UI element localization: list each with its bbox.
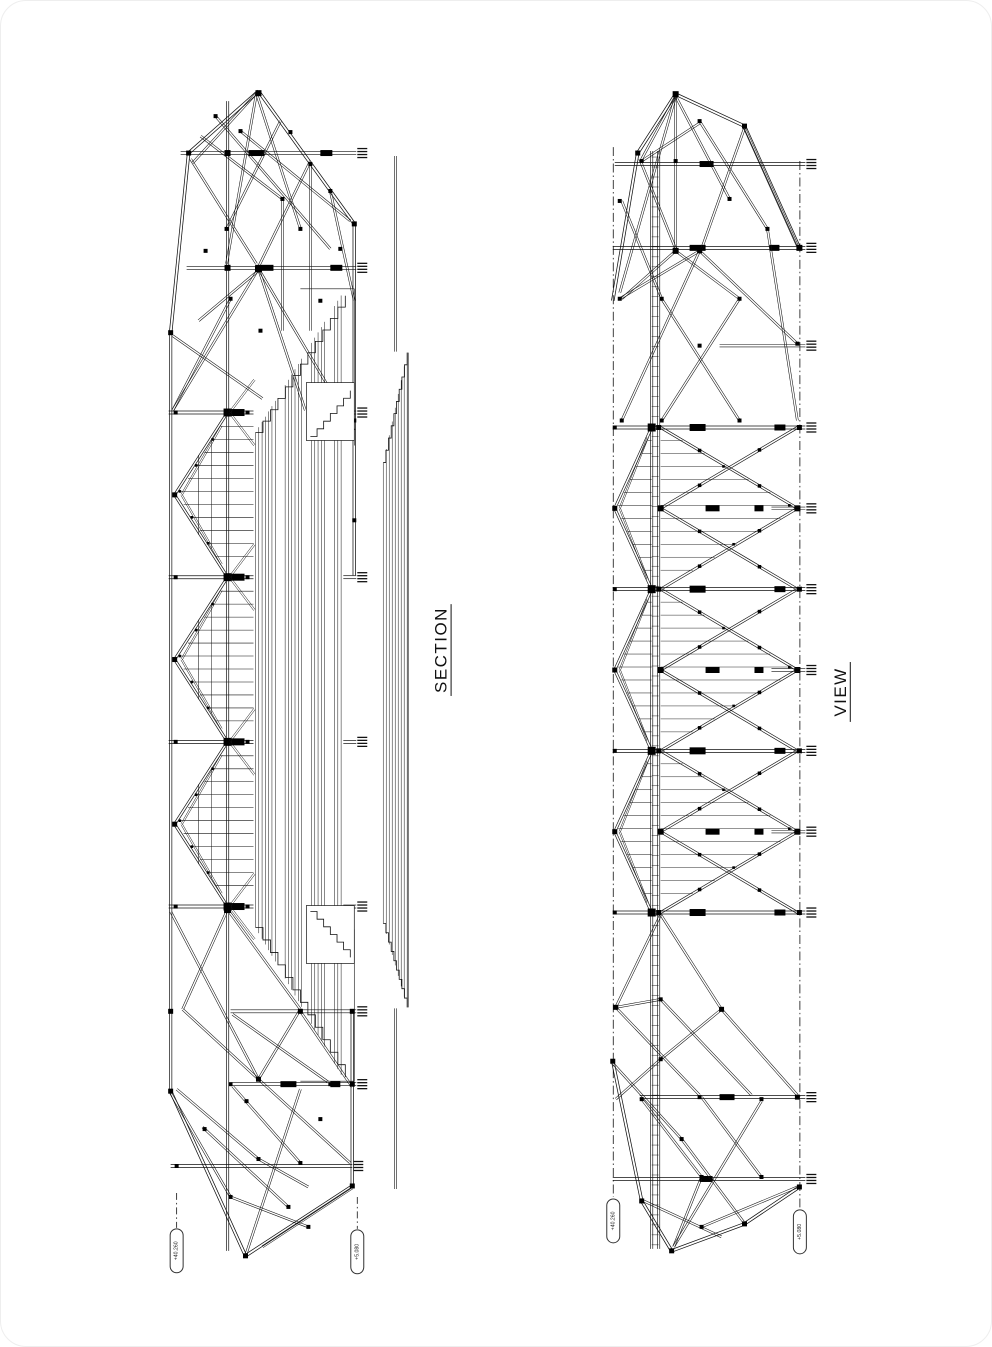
view-elevation-right: +5.080 (793, 1210, 806, 1254)
view-elevation-right-value: +5.080 (797, 1224, 803, 1240)
view-title-label: VIEW (831, 667, 850, 716)
section-title-group: SECTION (432, 604, 451, 696)
view-elevation-left-value: +40.260 (610, 1211, 616, 1230)
section-elevation-right-value: +5.080 (354, 1244, 360, 1260)
drawing-sheet: +40.260+5.080 +40.260+5.080 SECTION VIEW (0, 0, 992, 1347)
section-elevation-left: +40.260 (170, 1229, 183, 1273)
section-title-label: SECTION (432, 607, 451, 693)
section-elevation-left-value: +40.260 (174, 1241, 180, 1260)
view-drawing: +40.260+5.080 (607, 91, 817, 1254)
section-elevation-right: +5.080 (351, 1230, 364, 1274)
view-title-group: VIEW (831, 662, 850, 722)
structural-drawing: +40.260+5.080 +40.260+5.080 SECTION VIEW (1, 1, 991, 1346)
section-drawing: +40.260+5.080 (168, 90, 408, 1274)
view-elevation-left: +40.260 (607, 1199, 620, 1243)
